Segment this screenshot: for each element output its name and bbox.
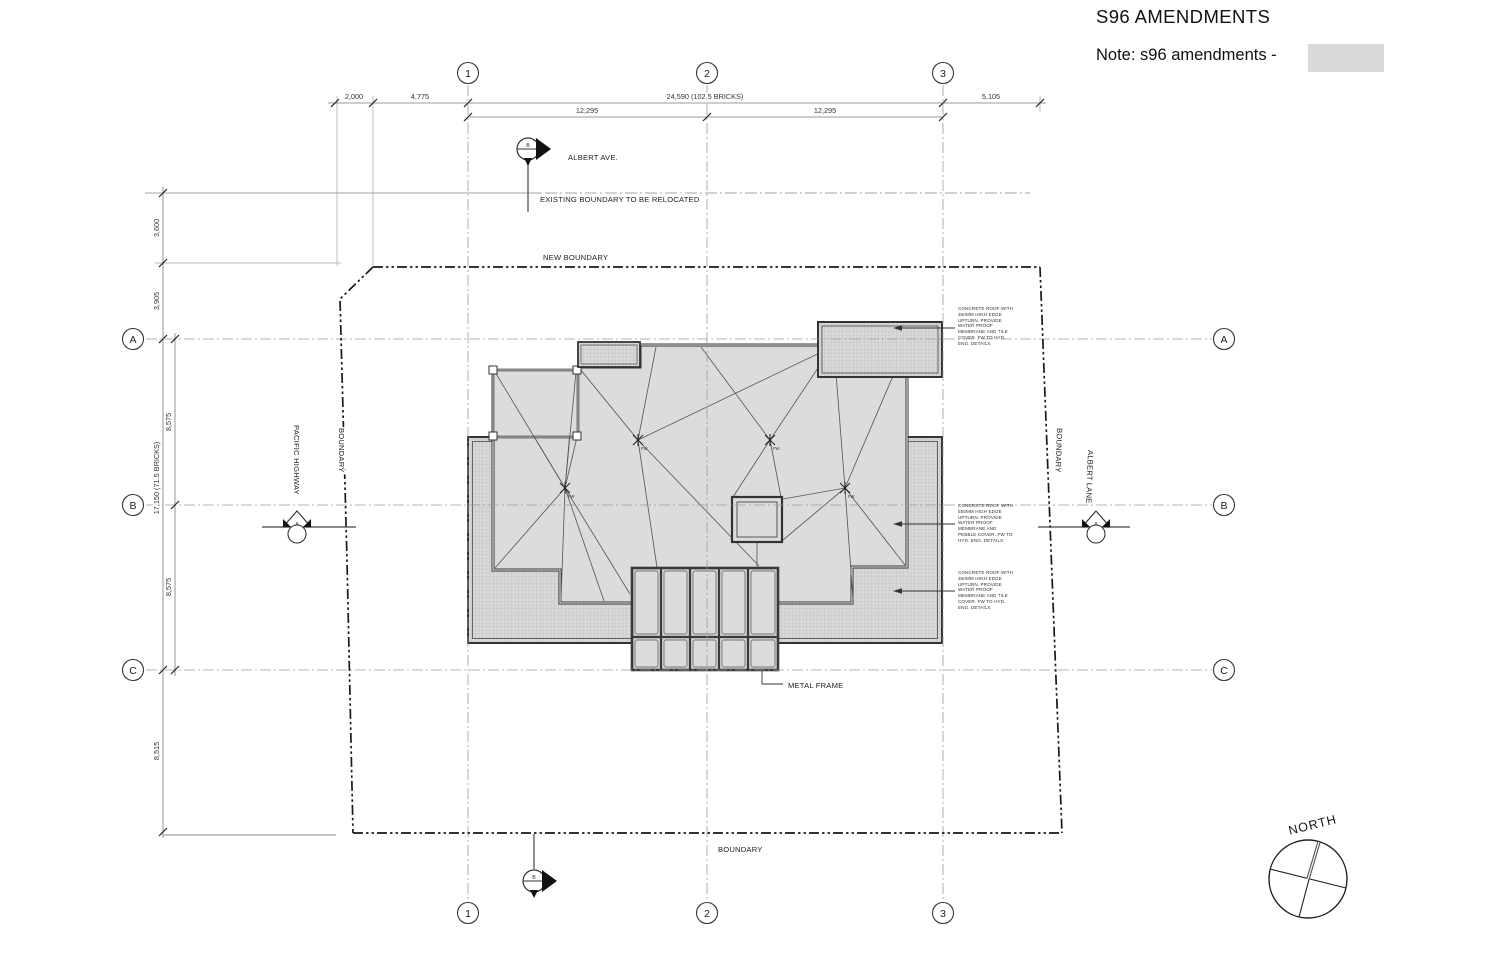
dim-left-inner: 8,575: [164, 578, 173, 596]
drain-label: FW: [773, 446, 780, 451]
left-boundary-line: [340, 267, 373, 833]
grid-row-a: A: [129, 334, 136, 346]
dim-left: 3,905: [152, 292, 161, 310]
roof-upstand: [732, 497, 782, 542]
dim-left-inner: 8,575: [164, 413, 173, 431]
existing-boundary-label: EXISTING BOUNDARY TO BE RELOCATED: [540, 195, 700, 204]
grid-row-b: B: [1220, 500, 1227, 512]
dim-top: 24,590 (102.5 BRICKS): [667, 92, 744, 101]
sheet-title: S96 AMENDMENTS: [1096, 6, 1270, 28]
boundary-label-bottom: BOUNDARY: [718, 845, 763, 854]
section-marker-label: A: [295, 522, 299, 528]
drain-label: FW: [848, 494, 855, 499]
grid-col-2: 2: [704, 68, 710, 80]
plan-canvas: FW FW FW FW: [0, 0, 1500, 970]
right-boundary-line: [1040, 267, 1062, 833]
section-marker-bottom: B: [523, 834, 557, 898]
roof-hatch-top-right: [818, 322, 942, 377]
metal-frame: [632, 568, 778, 670]
roof-hatch-top-left: [578, 342, 640, 367]
amendment-note: Note: s96 amendments -: [1096, 46, 1277, 65]
dim-left: 8,515: [152, 742, 161, 760]
boundary-label-right: BOUNDARY: [1053, 428, 1064, 473]
roof-plan: FW FW FW FW: [468, 322, 942, 670]
section-marker-left: A: [262, 511, 356, 543]
annotation-roof-pebble: CONCRETE ROOF WITH 500MM HIGH EDGE UPTUR…: [958, 503, 1022, 544]
grid-row-b: B: [129, 500, 136, 512]
new-boundary-label: NEW BOUNDARY: [543, 253, 608, 262]
grid-col-3: 3: [940, 908, 946, 920]
grid-col-3: 3: [940, 68, 946, 80]
north-arrow-icon: [1269, 840, 1347, 918]
street-label-top: ALBERT AVE.: [568, 153, 618, 162]
street-label-left: PACIFIC HIGHWAY: [292, 425, 301, 495]
drain-label: FW: [568, 494, 575, 499]
annotation-roof-tile-top: CONCRETE ROOF WITH 300MM HIGH EDGE UPTUR…: [958, 306, 1022, 347]
grid-row-a: A: [1220, 334, 1227, 346]
dim-left: 17,150 (71.5 BRICKS): [152, 442, 161, 515]
boundary-label-left: BOUNDARY: [337, 428, 346, 473]
dim-top-inner: 12,295: [814, 106, 836, 115]
metal-frame-label: METAL FRAME: [788, 681, 843, 690]
section-marker-label: B: [532, 875, 536, 881]
dim-top: 4,775: [411, 92, 429, 101]
grid-col-2: 2: [704, 908, 710, 920]
grid-col-1: 1: [465, 908, 471, 920]
section-marker-right: A: [1038, 511, 1130, 543]
annotation-roof-tile-bottom: CONCRETE ROOF WITH 300MM HIGH EDGE UPTUR…: [958, 570, 1022, 611]
drawing-sheet: FW FW FW FW: [0, 0, 1500, 970]
street-label-right: ALBERT LANE: [1084, 450, 1095, 504]
amendment-color-swatch: [1308, 44, 1384, 72]
grid-row-c: C: [129, 665, 137, 677]
grid-col-1: 1: [465, 68, 471, 80]
section-marker-label: A: [1094, 522, 1098, 528]
dim-top: 5,105: [982, 92, 1000, 101]
section-marker-label: B: [526, 143, 530, 149]
drain-label: FW: [641, 446, 648, 451]
dim-top: 2,000: [345, 92, 363, 101]
dim-left: 3,600: [152, 219, 161, 237]
dim-top-inner: 12,295: [576, 106, 598, 115]
grid-row-c: C: [1220, 665, 1228, 677]
